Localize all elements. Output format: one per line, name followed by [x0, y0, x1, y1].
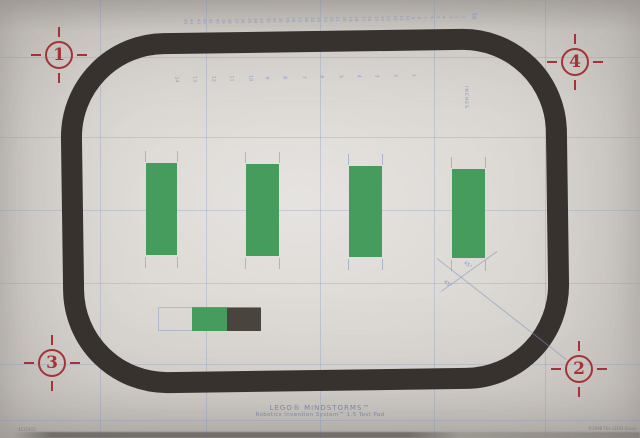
pad-edge-shadow: [0, 432, 640, 438]
angle-label: 45°: [462, 260, 473, 270]
pad-title: LEGO® MINDSTORMS™ Robotics Invention Sys…: [0, 404, 640, 420]
angle-label-layer: 45°45°: [0, 0, 640, 438]
pad-title-line2: Robotics Invention System™ 1.5 Test Pad: [0, 412, 640, 419]
start-box-black-half: [227, 308, 261, 331]
angle-label: 45°: [442, 279, 453, 289]
ruler-unit-label: INCHES: [463, 86, 468, 109]
start-box-green-half: [192, 308, 227, 331]
ruler-end-label: 50: [471, 13, 477, 20]
copyright-print: ©1998 The LEGO Group: [588, 426, 637, 431]
test-pad-photo: 1432 45444342414039383736353433323130292…: [0, 0, 640, 438]
